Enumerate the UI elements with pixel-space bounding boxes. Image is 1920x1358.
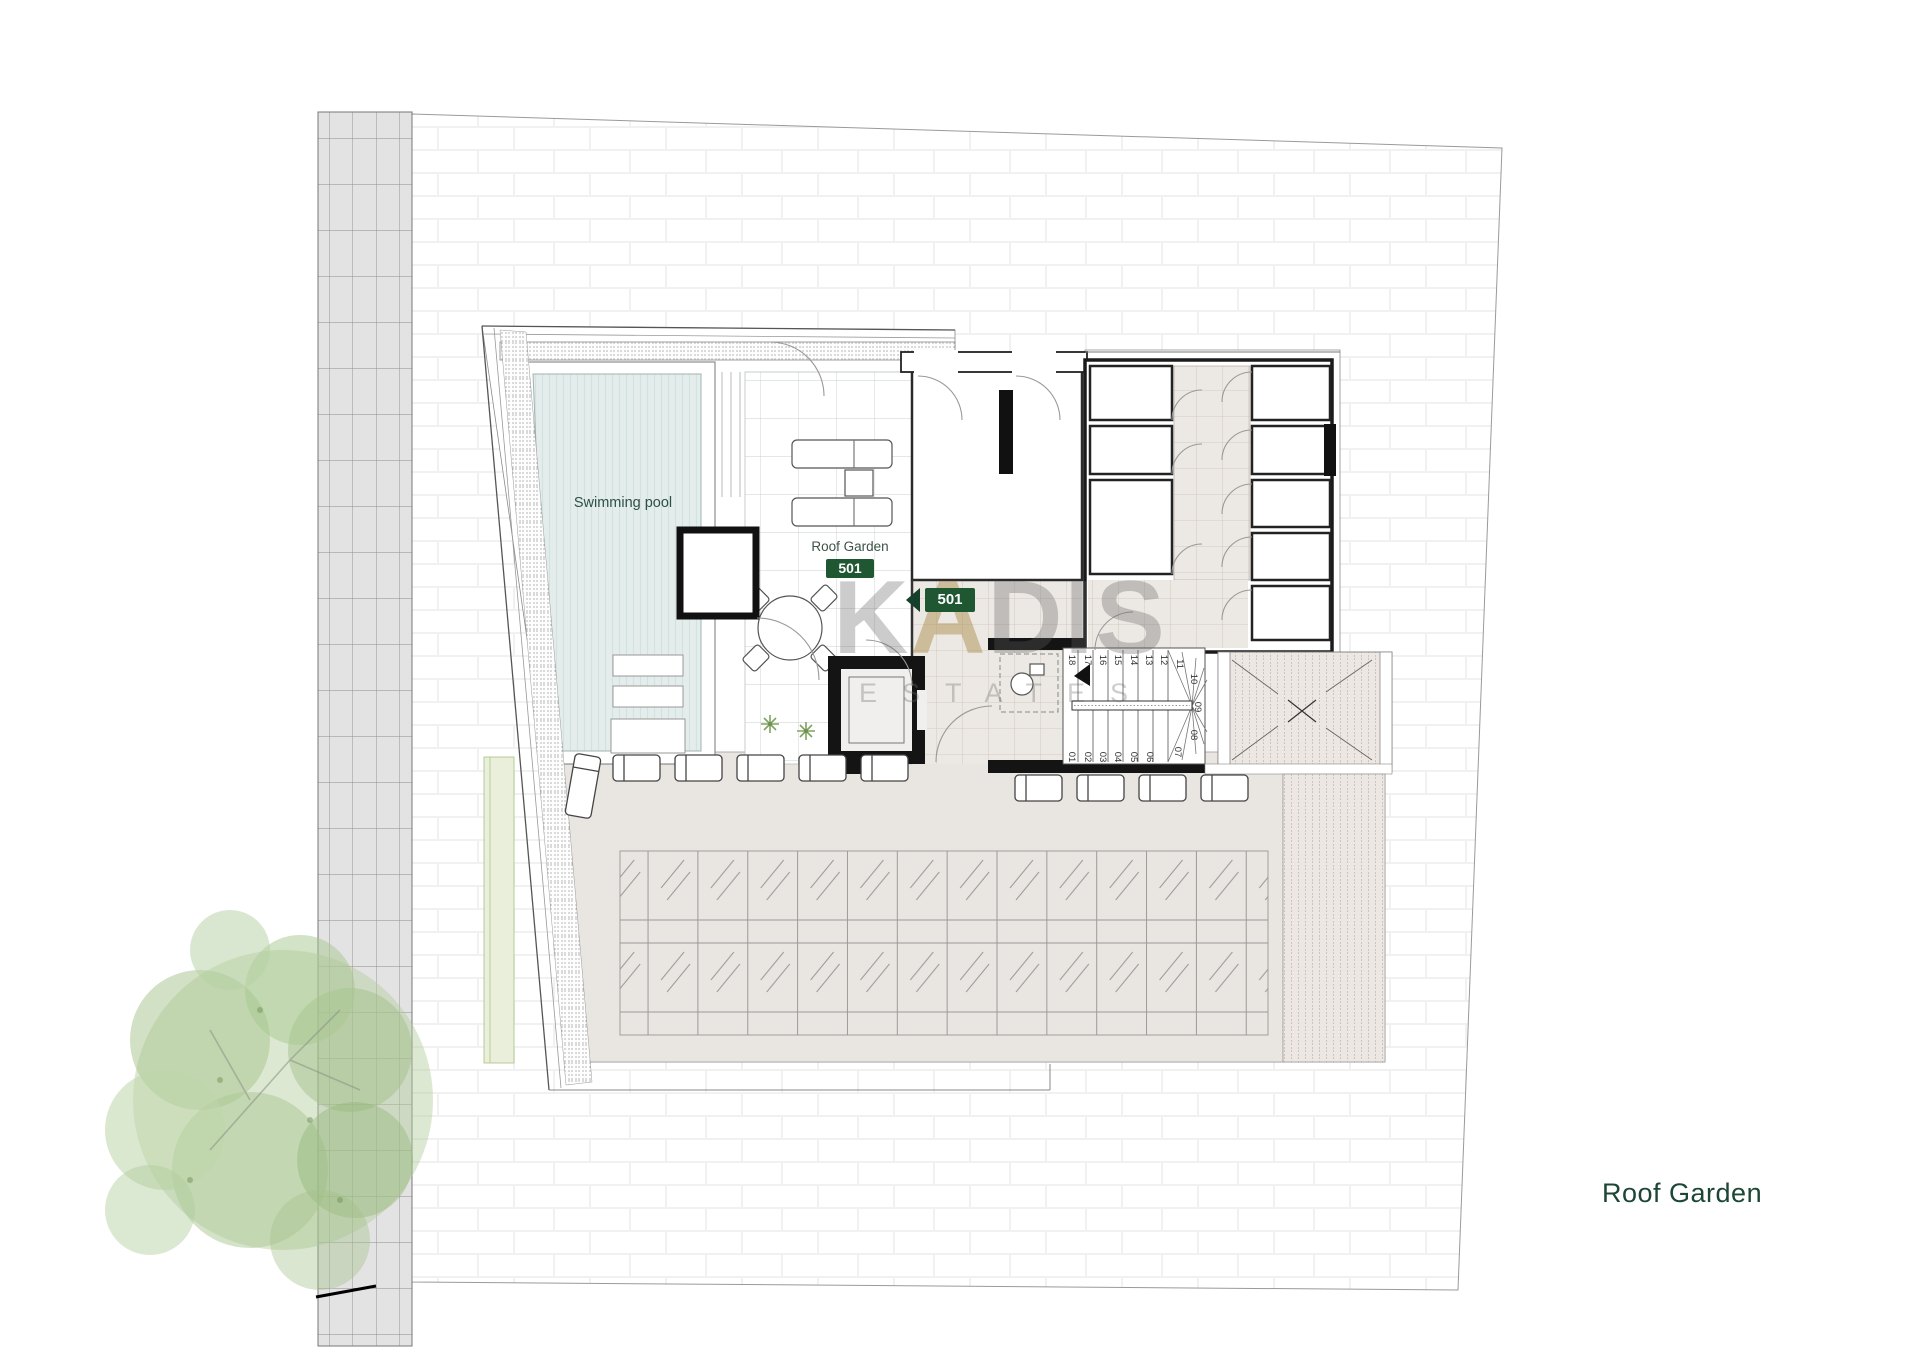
storage-room-05 — [1252, 480, 1330, 527]
svg-text:05: 05 — [1128, 752, 1139, 763]
storage-room-10 — [1090, 480, 1172, 574]
storage-room-08 — [1090, 366, 1172, 420]
sheet-title: Roof Garden — [1602, 1178, 1762, 1209]
svg-text:13: 13 — [1143, 655, 1154, 666]
solar-panel-row — [620, 943, 1268, 1035]
svg-text:17: 17 — [1082, 655, 1093, 666]
sun-lounger — [792, 498, 892, 526]
entry-unit-pointer: 501 — [906, 588, 975, 612]
central-room-501 — [901, 350, 1087, 580]
svg-text:07: 07 — [1172, 747, 1183, 758]
sun-lounger — [675, 755, 722, 781]
wall-fin — [999, 390, 1013, 474]
unit-badge: 501 — [925, 588, 975, 612]
pool-step — [613, 655, 683, 676]
sun-lounger — [1015, 775, 1062, 801]
pool-step — [613, 686, 683, 707]
stair-railing — [1072, 701, 1192, 710]
swimming-pool-label: Swimming pool — [550, 494, 696, 513]
sun-lounger — [1139, 775, 1186, 801]
svg-text:06: 06 — [1144, 752, 1155, 763]
pergola — [1205, 652, 1392, 774]
floor-plan-drawing: 01 02 03 04 05 06 07 08 09 10 11 12 13 1… — [0, 0, 1920, 1358]
storage-room-04 — [1252, 426, 1330, 474]
left-arrow-icon — [906, 588, 920, 612]
svg-text:12: 12 — [1158, 655, 1169, 666]
svg-text:16: 16 — [1097, 655, 1108, 666]
solar-panel-row — [620, 851, 1268, 943]
storage-room-06 — [1252, 533, 1330, 580]
storage-room-09 — [1090, 426, 1172, 474]
roof-garden-label: Roof Garden — [788, 539, 912, 554]
svg-text:02: 02 — [1082, 752, 1093, 763]
skylight-room — [680, 530, 756, 616]
svg-text:04: 04 — [1112, 752, 1123, 763]
sun-lounger — [1077, 775, 1124, 801]
sun-lounger — [792, 440, 892, 468]
svg-text:14: 14 — [1128, 655, 1139, 666]
sun-lounger — [613, 755, 660, 781]
storage-room-07 — [1252, 586, 1330, 640]
svg-text:15: 15 — [1112, 655, 1123, 666]
pool-step — [611, 719, 685, 753]
sun-lounger — [799, 755, 846, 781]
svg-text:11: 11 — [1174, 659, 1185, 669]
svg-text:01: 01 — [1066, 752, 1077, 763]
elevator — [828, 656, 927, 764]
svg-text:10: 10 — [1188, 674, 1199, 685]
svg-text:18: 18 — [1066, 655, 1077, 666]
svg-text:08: 08 — [1188, 730, 1199, 741]
roof-garden-label-group: Roof Garden 501 — [788, 539, 912, 578]
storage-block — [1085, 352, 1340, 652]
planter-strip — [484, 757, 514, 1063]
side-table — [845, 470, 873, 496]
sun-lounger — [1201, 775, 1248, 801]
svg-text:09: 09 — [1192, 702, 1203, 713]
storage-room-03 — [1252, 366, 1330, 420]
sun-lounger — [737, 755, 784, 781]
floor-plan-sheet: 01 02 03 04 05 06 07 08 09 10 11 12 13 1… — [0, 0, 1920, 1358]
svg-text:03: 03 — [1097, 752, 1108, 763]
sun-lounger — [861, 755, 908, 781]
gravel-strip — [1283, 774, 1385, 1062]
unit-badge: 501 — [826, 559, 874, 578]
